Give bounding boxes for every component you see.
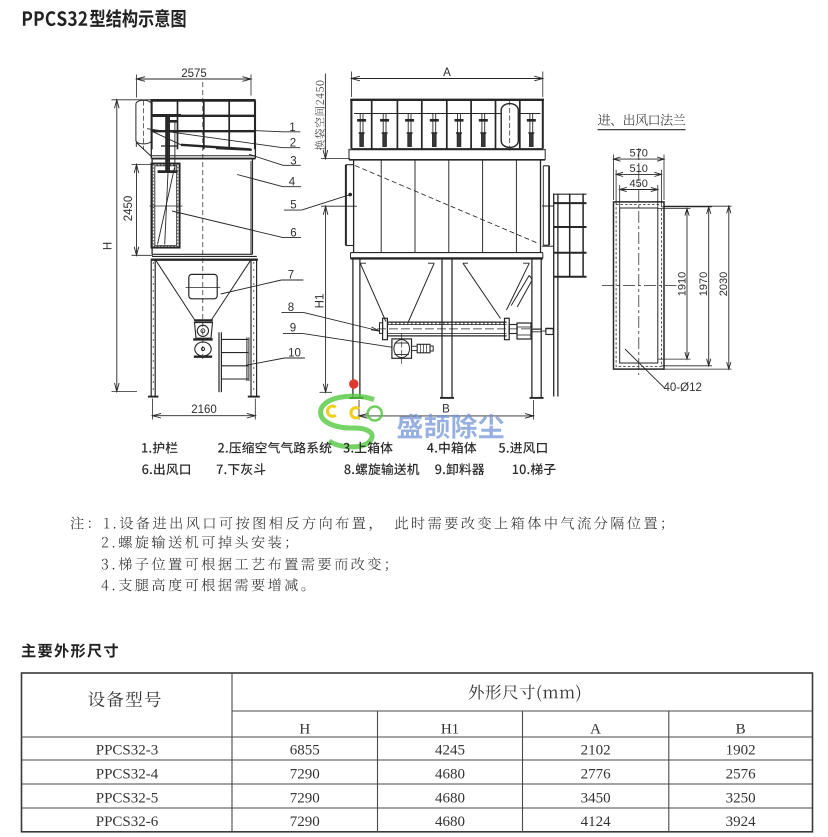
svg-text:9: 9 [290, 323, 296, 335]
svg-text:2160: 2160 [191, 404, 217, 416]
svg-text:A: A [590, 722, 601, 738]
svg-text:450: 450 [630, 178, 648, 190]
svg-text:4245: 4245 [435, 743, 465, 759]
svg-text:7290: 7290 [290, 767, 320, 783]
svg-text:H1: H1 [315, 294, 327, 309]
svg-text:A: A [443, 67, 451, 79]
svg-text:H: H [102, 242, 114, 250]
svg-text:7290: 7290 [290, 814, 320, 830]
svg-text:7290: 7290 [290, 791, 320, 807]
svg-text:H: H [299, 722, 310, 738]
svg-text:570: 570 [630, 148, 648, 160]
svg-text:510: 510 [630, 163, 648, 175]
svg-text:2776: 2776 [581, 767, 612, 783]
svg-text:3924: 3924 [726, 814, 757, 830]
svg-text:4680: 4680 [435, 767, 465, 783]
svg-text:1970: 1970 [698, 272, 710, 296]
svg-text:2102: 2102 [581, 743, 611, 759]
svg-text:PPCS32-3: PPCS32-3 [96, 743, 159, 759]
svg-text:2450: 2450 [123, 196, 135, 222]
svg-text:2030: 2030 [718, 272, 730, 296]
svg-text:2575: 2575 [181, 68, 207, 80]
svg-text:40-Ø12: 40-Ø12 [664, 382, 702, 394]
svg-text:4124: 4124 [581, 814, 612, 830]
svg-text:B: B [442, 404, 450, 416]
svg-text:H1: H1 [441, 722, 459, 738]
svg-text:PPCS32-5: PPCS32-5 [96, 791, 159, 807]
svg-text:2576: 2576 [726, 767, 757, 783]
svg-text:B: B [736, 722, 746, 738]
svg-text:PPCS32-4: PPCS32-4 [96, 767, 159, 783]
svg-text:3250: 3250 [726, 791, 756, 807]
svg-text:1910: 1910 [676, 272, 688, 296]
svg-text:1902: 1902 [726, 743, 756, 759]
svg-text:PPCS32-6: PPCS32-6 [96, 814, 159, 830]
svg-text:6855: 6855 [290, 743, 320, 759]
svg-text:4680: 4680 [435, 791, 465, 807]
svg-text:4680: 4680 [435, 814, 465, 830]
svg-text:3450: 3450 [581, 791, 611, 807]
